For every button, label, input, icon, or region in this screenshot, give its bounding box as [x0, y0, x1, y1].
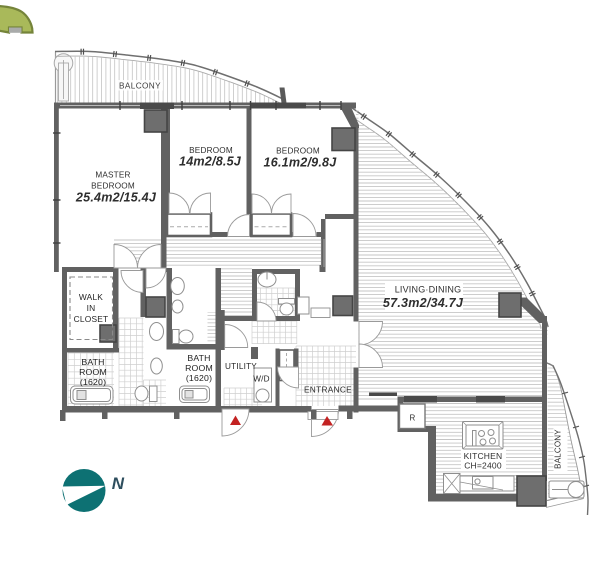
- svg-text:UTILITY: UTILITY: [225, 362, 257, 371]
- svg-text:(1620): (1620): [80, 377, 106, 387]
- svg-text:W/D: W/D: [253, 375, 270, 384]
- svg-text:25.4m2/15.4J: 25.4m2/15.4J: [75, 191, 157, 205]
- svg-text:BATH: BATH: [81, 357, 104, 367]
- svg-text:BALCONY: BALCONY: [554, 429, 563, 469]
- svg-text:BALCONY: BALCONY: [119, 82, 161, 91]
- svg-text:BEDROOM: BEDROOM: [91, 182, 135, 191]
- svg-text:N: N: [112, 474, 125, 493]
- svg-text:MASTER: MASTER: [95, 171, 130, 180]
- svg-text:ROOM: ROOM: [79, 367, 107, 377]
- svg-text:ROOM: ROOM: [185, 363, 213, 373]
- svg-text:BEDROOM: BEDROOM: [276, 147, 320, 156]
- svg-text:IN: IN: [87, 303, 96, 313]
- svg-text:R: R: [410, 414, 416, 423]
- svg-text:LIVING·DINING: LIVING·DINING: [395, 285, 462, 295]
- svg-text:(1620): (1620): [186, 373, 212, 383]
- svg-text:57.3m2/34.7J: 57.3m2/34.7J: [383, 296, 464, 310]
- svg-text:BATH: BATH: [187, 353, 210, 363]
- svg-text:14m2/8.5J: 14m2/8.5J: [179, 155, 242, 169]
- svg-text:CH=2400: CH=2400: [464, 461, 502, 471]
- svg-text:WALK: WALK: [79, 292, 103, 302]
- svg-text:KITCHEN: KITCHEN: [464, 451, 503, 461]
- svg-text:16.1m2/9.8J: 16.1m2/9.8J: [264, 156, 338, 170]
- svg-text:CLOSET: CLOSET: [74, 314, 109, 324]
- svg-text:ENTRANCE: ENTRANCE: [304, 385, 352, 395]
